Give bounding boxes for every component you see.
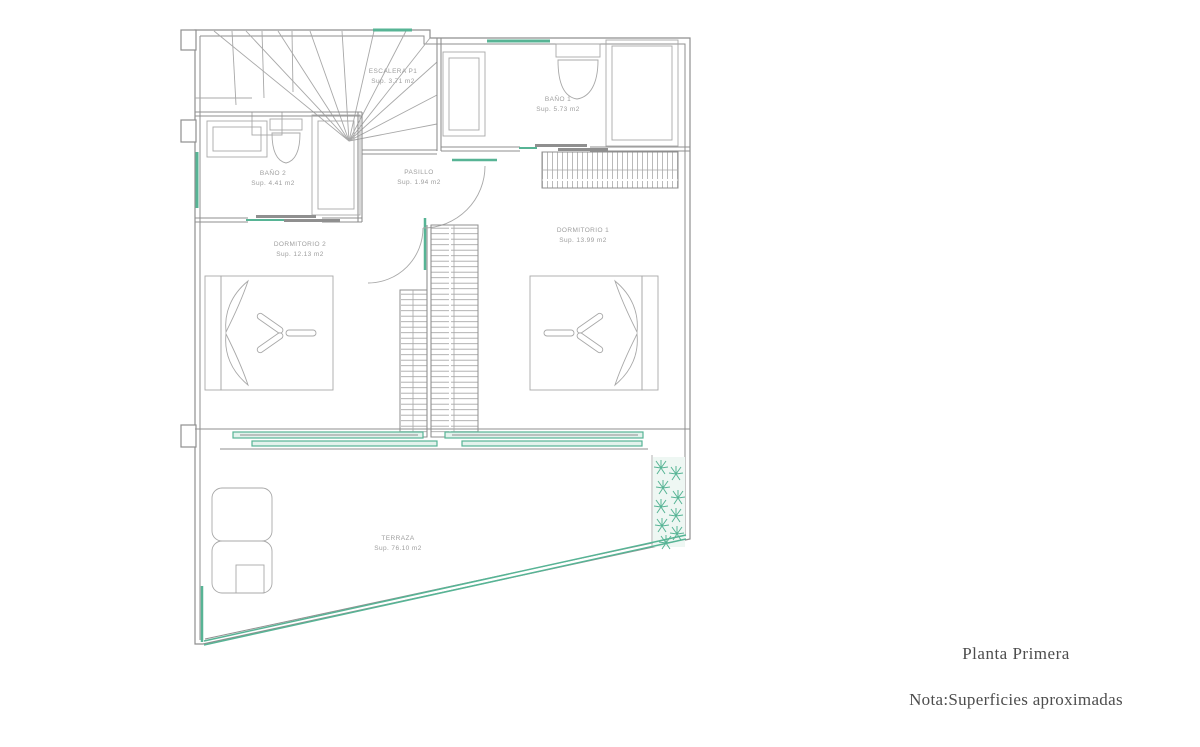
pillow-icon xyxy=(615,281,637,332)
door-arc xyxy=(368,228,423,283)
room-area-dormitorio2: Sup. 12.13 m2 xyxy=(276,251,323,258)
blanket-fold-icon xyxy=(544,312,604,354)
blanket-fold-icon xyxy=(256,312,316,354)
room-label-dormitorio1: DORMITORIO 1 xyxy=(557,227,609,234)
pillow-icon xyxy=(226,334,248,385)
plant-icon xyxy=(652,455,685,549)
sliding-door xyxy=(252,441,437,446)
pillow-icon xyxy=(226,281,248,332)
vanity-icon xyxy=(207,121,267,157)
stair-treads-icon xyxy=(214,31,437,141)
room-area-bano1: Sup. 5.73 m2 xyxy=(536,106,579,113)
room-labels: ESCALERA P1 Sup. 3.71 m2 BAÑO 1 Sup. 5.7… xyxy=(251,68,609,552)
wall-tab xyxy=(181,30,196,50)
terrace xyxy=(204,455,686,645)
floor-plan-page: ESCALERA P1 Sup. 3.71 m2 BAÑO 1 Sup. 5.7… xyxy=(0,0,1200,747)
room-label-terraza: TERRAZA xyxy=(381,535,414,542)
room-label-escalera: ESCALERA P1 xyxy=(369,68,417,75)
room-label-pasillo: PASILLO xyxy=(404,169,433,176)
wardrobe-icon xyxy=(542,152,678,188)
room-label-bano1: BAÑO 1 xyxy=(545,94,571,103)
room-label-dormitorio2: DORMITORIO 2 xyxy=(274,241,326,248)
closet-icon xyxy=(400,290,427,437)
pillow-icon xyxy=(615,334,637,385)
room-label-bano2: BAÑO 2 xyxy=(260,168,286,177)
bed-icon-dormitorio-1 xyxy=(530,276,658,390)
room-area-dormitorio1: Sup. 13.99 m2 xyxy=(559,237,606,244)
bed-icon-dormitorio-2 xyxy=(205,276,333,390)
terrace-edge xyxy=(204,535,686,645)
closets xyxy=(400,225,478,437)
shower-icon xyxy=(606,40,678,146)
side-table-icon xyxy=(236,565,264,593)
plan-note: Nota:Superficies aproximadas xyxy=(856,690,1176,710)
wall-tab xyxy=(181,120,196,142)
sofa-icon xyxy=(212,488,272,593)
vanity-icon xyxy=(443,52,485,136)
room-area-terraza: Sup. 76.10 m2 xyxy=(374,545,421,552)
staircase xyxy=(195,31,437,141)
room-area-bano2: Sup. 4.41 m2 xyxy=(251,180,294,187)
toilet-icon xyxy=(270,119,302,163)
toilet-icon xyxy=(556,44,600,99)
room-area-pasillo: Sup. 1.94 m2 xyxy=(397,179,440,186)
plan-title: Planta Primera xyxy=(856,644,1176,664)
floor-plan-drawing: ESCALERA P1 Sup. 3.71 m2 BAÑO 1 Sup. 5.7… xyxy=(0,0,1200,747)
sliding-door xyxy=(462,441,642,446)
wall-tab xyxy=(181,425,196,447)
closet-icon xyxy=(431,225,478,437)
room-area-escalera: Sup. 3.71 m2 xyxy=(371,78,414,85)
plan-caption: Planta Primera Nota:Superficies aproxima… xyxy=(856,644,1176,710)
